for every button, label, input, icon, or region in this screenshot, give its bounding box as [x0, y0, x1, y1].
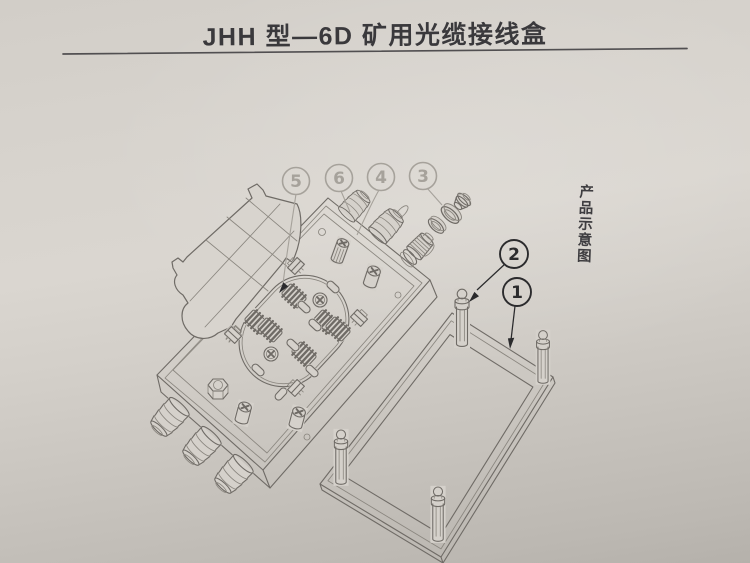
gland-parts-exploded	[336, 186, 475, 262]
splice-holders	[242, 281, 353, 369]
tray-screw	[312, 292, 328, 308]
rim-hole	[319, 229, 326, 236]
leader-arrow	[469, 292, 479, 302]
cover-post	[430, 486, 445, 543]
callout-1: 1	[503, 278, 531, 349]
tray-clip	[348, 307, 371, 330]
leader-line	[511, 306, 515, 340]
rim-screw	[286, 404, 308, 432]
tray-screw	[263, 346, 279, 362]
rim-screw	[232, 399, 254, 427]
callout-3: 3	[410, 163, 443, 206]
leader-line	[477, 264, 505, 290]
callout-number: 1	[511, 283, 523, 303]
cover-plate	[320, 288, 555, 563]
cover-post	[333, 429, 348, 486]
mounted-gland	[366, 204, 408, 246]
cable-gland	[146, 395, 192, 442]
guide-post	[249, 361, 267, 378]
leader-line	[427, 188, 442, 205]
callout-number: 2	[508, 245, 520, 265]
photographed-page: JHH 型—6D 矿用光缆接线盒 产品示意图	[0, 0, 750, 563]
tray-clip	[285, 377, 308, 400]
cable-gland	[210, 452, 256, 499]
title-underline	[63, 49, 687, 55]
hinged-cover-flap	[172, 184, 301, 345]
cap-screw	[329, 236, 351, 266]
cover-post	[454, 288, 470, 348]
rim-hole	[395, 292, 401, 298]
guide-post	[272, 385, 289, 403]
callout-number: 6	[333, 169, 345, 189]
cable-gland	[178, 424, 224, 471]
callout-number: 5	[290, 172, 302, 192]
callout-number: 4	[375, 168, 387, 188]
rim-hole	[304, 434, 310, 440]
hex-standoff	[207, 378, 229, 400]
rim-screw	[361, 263, 384, 292]
callout-number: 3	[417, 167, 429, 187]
exploded-view-diagram: 5 6 4 3 2 1	[0, 0, 750, 563]
cover-post	[536, 330, 551, 385]
leader-arrow	[508, 338, 514, 349]
flap-outline	[172, 184, 301, 338]
